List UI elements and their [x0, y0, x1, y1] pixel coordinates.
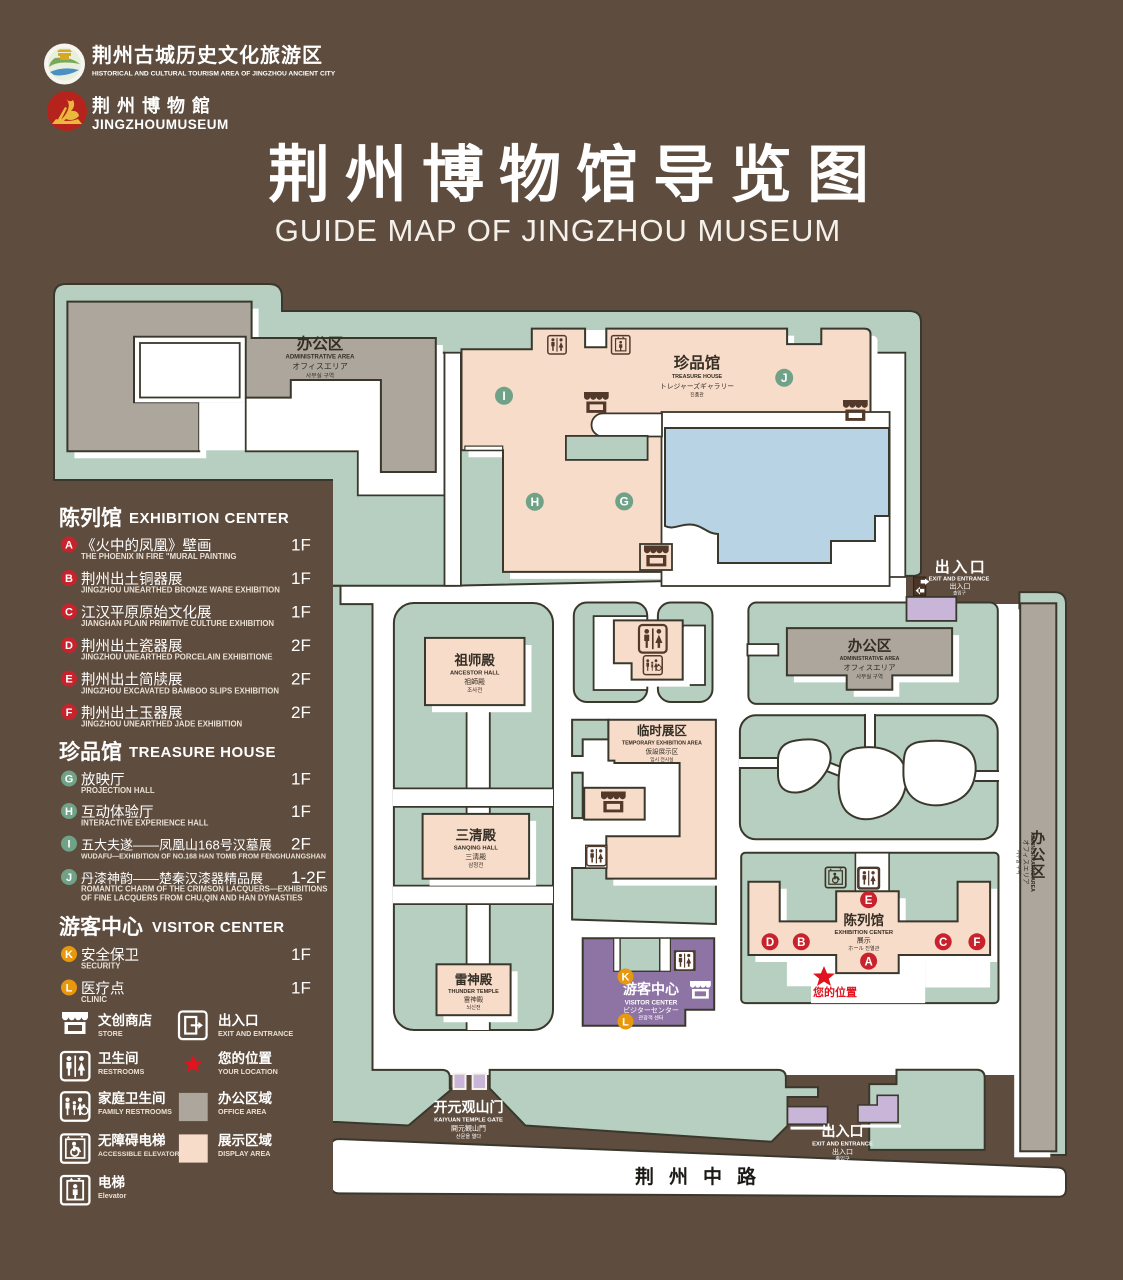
svg-text:D: D	[766, 937, 774, 949]
svg-text:출입구: 출입구	[953, 590, 966, 597]
svg-text:I: I	[502, 389, 505, 403]
svg-text:陈列馆: 陈列馆	[844, 912, 885, 928]
svg-text:游客中心: 游客中心	[59, 915, 143, 939]
svg-text:Elevator: Elevator	[98, 1191, 127, 1200]
svg-text:雷神殿: 雷神殿	[464, 995, 484, 1004]
svg-text:관광객 센터: 관광객 센터	[638, 1014, 664, 1022]
svg-text:珍品馆: 珍品馆	[674, 353, 721, 372]
svg-text:出入口: 出入口	[935, 558, 988, 576]
svg-text:SECURITY: SECURITY	[81, 962, 121, 971]
svg-text:H: H	[65, 806, 73, 818]
svg-text:PROJECTION HALL: PROJECTION HALL	[81, 786, 155, 795]
svg-text:展示: 展示	[857, 937, 871, 945]
svg-text:JINGZHOU UNEARTHED BRONZE WARE: JINGZHOU UNEARTHED BRONZE WARE EXHIBITIO…	[81, 586, 280, 595]
svg-text:FAMILY RESTROOMS: FAMILY RESTROOMS	[98, 1107, 172, 1116]
svg-text:陈列馆: 陈列馆	[59, 506, 122, 530]
svg-text:사무실 구역: 사무실 구역	[1015, 850, 1022, 874]
svg-text:EXHIBITION CENTER: EXHIBITION CENTER	[129, 510, 289, 527]
svg-text:I: I	[67, 839, 70, 851]
svg-text:사무실 구역: 사무실 구역	[306, 372, 334, 380]
svg-text:电梯: 电梯	[98, 1174, 125, 1190]
svg-text:1F: 1F	[291, 770, 311, 789]
svg-text:G: G	[65, 774, 74, 786]
svg-text:您的位置: 您的位置	[813, 985, 857, 999]
svg-text:WUDAFU—EXHIBITION OF NO.168 HA: WUDAFU—EXHIBITION OF NO.168 HAN TOMB FRO…	[81, 853, 326, 860]
svg-text:ADMINISTRATIVE AREA: ADMINISTRATIVE AREA	[286, 355, 356, 361]
svg-text:B: B	[65, 573, 73, 585]
svg-text:五大夫遂——凤凰山168号汉墓展: 五大夫遂——凤凰山168号汉墓展	[81, 838, 272, 853]
svg-text:TEMPORARY EXHIBITION AREA: TEMPORARY EXHIBITION AREA	[622, 741, 702, 747]
svg-text:STORE: STORE	[98, 1029, 123, 1038]
svg-text:JIANGHAN PLAIN PRIMITIVE CULTU: JIANGHAN PLAIN PRIMITIVE CULTURE EXHIBIT…	[81, 619, 274, 628]
svg-text:출입구: 출입구	[835, 1155, 850, 1163]
svg-text:C: C	[65, 607, 73, 619]
svg-text:仮設展示区: 仮設展示区	[646, 747, 679, 756]
svg-text:荆州古城历史文化旅游区: 荆州古城历史文化旅游区	[92, 43, 323, 67]
svg-text:无障碍电梯: 无障碍电梯	[97, 1132, 166, 1148]
svg-text:산문을 열다: 산문을 열다	[456, 1132, 482, 1140]
svg-text:INTERACTIVE EXPERIENCE HALL: INTERACTIVE EXPERIENCE HALL	[81, 819, 209, 828]
svg-text:雷神殿: 雷神殿	[455, 972, 493, 987]
svg-text:KAIYUAN TEMPLE GATE: KAIYUAN TEMPLE GATE	[434, 1118, 503, 1124]
svg-text:ANCESTOR HALL: ANCESTOR HALL	[450, 671, 500, 677]
svg-text:JINGZHOU UNEARTHED PORCELAIN E: JINGZHOU UNEARTHED PORCELAIN EXHIBITIONE	[81, 653, 272, 662]
svg-text:F: F	[66, 707, 73, 719]
svg-text:HISTORICAL AND CULTURAL TOURIS: HISTORICAL AND CULTURAL TOURISM AREA OF …	[92, 71, 336, 78]
svg-text:진품관: 진품관	[690, 392, 704, 399]
svg-text:トレジャーズギャラリー: トレジャーズギャラリー	[660, 382, 734, 391]
svg-text:J: J	[781, 371, 788, 385]
svg-text:VISITOR CENTER: VISITOR CENTER	[625, 1000, 678, 1007]
svg-text:OF FINE LACQUERS FROM CHU,QIN: OF FINE LACQUERS FROM CHU,QIN AND HAN DY…	[81, 894, 303, 903]
svg-text:JINGZHOU EXCAVATED BAMBOO SLIP: JINGZHOU EXCAVATED BAMBOO SLIPS EXHIBITI…	[81, 686, 279, 695]
svg-text:1F: 1F	[291, 979, 311, 998]
svg-text:E: E	[865, 895, 873, 907]
svg-text:EXIT AND ENTRANCE: EXIT AND ENTRANCE	[929, 577, 990, 583]
svg-text:临时展区: 临时展区	[637, 723, 688, 738]
svg-text:祖師殿: 祖師殿	[464, 677, 485, 686]
svg-text:2F: 2F	[291, 636, 311, 655]
svg-text:1F: 1F	[291, 945, 311, 964]
svg-text:办公区域: 办公区域	[218, 1090, 272, 1106]
svg-text:EXHIBITION CENTER: EXHIBITION CENTER	[834, 930, 893, 936]
svg-text:家庭卫生间: 家庭卫生间	[98, 1090, 166, 1106]
svg-text:荆州博物館: 荆州博物館	[92, 95, 217, 116]
svg-text:ADMINISTRATIVE AREA: ADMINISTRATIVE AREA	[840, 656, 900, 662]
svg-text:DISPLAY AREA: DISPLAY AREA	[218, 1149, 270, 1158]
svg-text:文创商店: 文创商店	[98, 1012, 152, 1028]
svg-text:開元観山門: 開元観山門	[451, 1124, 486, 1133]
svg-text:1F: 1F	[291, 569, 311, 588]
svg-text:CLINIC: CLINIC	[81, 995, 107, 1004]
svg-text:オフィスエリア: オフィスエリア	[1022, 839, 1030, 885]
svg-text:2F: 2F	[291, 835, 311, 854]
svg-text:K: K	[65, 949, 73, 961]
svg-text:1F: 1F	[291, 536, 311, 555]
svg-text:F: F	[973, 937, 980, 949]
svg-text:出入口: 出入口	[822, 1123, 864, 1139]
svg-text:YOUR LOCATION: YOUR LOCATION	[218, 1067, 278, 1076]
svg-text:TREASURE HOUSE: TREASURE HOUSE	[672, 374, 723, 380]
svg-text:THE PHOENIX IN FIRE "MURAL PAI: THE PHOENIX IN FIRE "MURAL PAINTING	[81, 552, 236, 561]
svg-text:JINGZHOU UNEARTHED JADE EXHIBI: JINGZHOU UNEARTHED JADE EXHIBITION	[81, 720, 243, 729]
svg-text:EXIT AND ENTRANCE: EXIT AND ENTRANCE	[218, 1029, 293, 1038]
svg-text:开元观山门: 开元观山门	[434, 1099, 504, 1115]
svg-text:您的位置: 您的位置	[218, 1050, 272, 1066]
svg-text:荆州中路: 荆州中路	[635, 1165, 771, 1188]
svg-text:办公区: 办公区	[297, 334, 344, 353]
svg-text:E: E	[65, 674, 72, 686]
svg-text:사무실 구역: 사무실 구역	[856, 673, 883, 681]
svg-text:GUIDE MAP OF JINGZHOU MUSEUM: GUIDE MAP OF JINGZHOU MUSEUM	[275, 213, 842, 248]
svg-text:L: L	[66, 983, 73, 995]
svg-text:G: G	[620, 495, 629, 509]
svg-text:L: L	[622, 1017, 629, 1029]
svg-text:B: B	[797, 937, 805, 949]
svg-text:TREASURE HOUSE: TREASURE HOUSE	[129, 744, 276, 761]
svg-text:珍品馆: 珍品馆	[59, 740, 122, 764]
svg-text:JINGZHOUMUSEUM: JINGZHOUMUSEUM	[92, 117, 229, 132]
svg-text:EXIT AND ENTRANCE: EXIT AND ENTRANCE	[812, 1142, 873, 1148]
svg-text:삼청전: 삼청전	[468, 861, 483, 869]
svg-text:2F: 2F	[291, 703, 311, 722]
svg-text:三清殿: 三清殿	[456, 827, 497, 843]
svg-text:A: A	[65, 540, 73, 552]
svg-text:H: H	[530, 495, 539, 509]
svg-text:임시 전시실: 임시 전시실	[650, 756, 673, 763]
svg-text:1F: 1F	[291, 603, 311, 622]
svg-text:뇌신전: 뇌신전	[466, 1003, 481, 1011]
svg-text:オフィスエリア: オフィスエリア	[292, 362, 348, 371]
svg-text:荆州博物馆导览图: 荆州博物馆导览图	[268, 141, 884, 210]
svg-text:SANQING HALL: SANQING HALL	[454, 846, 499, 852]
svg-text:RESTROOMS: RESTROOMS	[98, 1067, 145, 1076]
svg-text:祖师殿: 祖师殿	[453, 652, 495, 668]
svg-text:D: D	[65, 640, 73, 652]
svg-text:卫生间: 卫生间	[98, 1050, 139, 1066]
svg-text:1F: 1F	[291, 802, 311, 821]
svg-text:オフィスエリア: オフィスエリア	[843, 663, 895, 672]
svg-text:J: J	[66, 872, 72, 884]
svg-text:出入口: 出入口	[832, 1147, 853, 1156]
svg-text:C: C	[939, 937, 947, 949]
svg-text:三清殿: 三清殿	[465, 852, 486, 861]
svg-text:THUNDER TEMPLE: THUNDER TEMPLE	[448, 989, 499, 995]
svg-text:2F: 2F	[291, 670, 311, 689]
svg-text:展示区域: 展示区域	[218, 1132, 272, 1148]
svg-text:OFFICE AREA: OFFICE AREA	[218, 1107, 266, 1116]
svg-text:A: A	[864, 956, 872, 968]
svg-text:游客中心: 游客中心	[623, 981, 679, 997]
svg-text:VISITOR CENTER: VISITOR CENTER	[152, 919, 285, 936]
svg-text:K: K	[622, 972, 630, 984]
svg-text:조사전: 조사전	[467, 686, 482, 694]
svg-text:办公区: 办公区	[848, 637, 892, 655]
svg-text:ホール 진열관: ホール 진열관	[848, 945, 880, 952]
svg-text:ACCESSIBLE ELEVATOR: ACCESSIBLE ELEVATOR	[98, 1151, 180, 1158]
svg-text:ビジターセンター: ビジターセンター	[623, 1006, 679, 1015]
svg-text:出入口: 出入口	[950, 582, 971, 591]
svg-text:1-2F: 1-2F	[291, 868, 326, 887]
svg-text:出入口: 出入口	[218, 1012, 259, 1028]
